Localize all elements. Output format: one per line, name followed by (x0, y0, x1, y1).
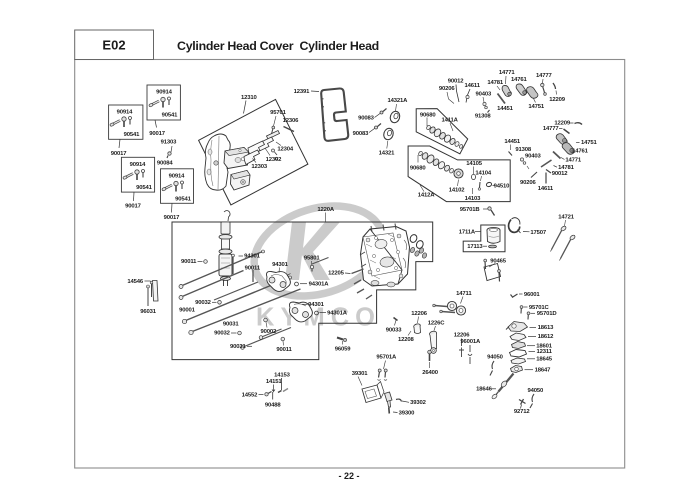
svg-text:14151: 14151 (266, 379, 283, 385)
svg-text:14102: 14102 (449, 187, 466, 193)
svg-text:1226C: 1226C (428, 321, 446, 327)
svg-text:90403: 90403 (475, 91, 492, 97)
svg-text:90541: 90541 (175, 196, 192, 202)
svg-text:12206: 12206 (454, 333, 471, 339)
svg-text:95701C: 95701C (529, 305, 550, 311)
svg-text:92712: 92712 (514, 409, 531, 415)
svg-text:90488: 90488 (265, 403, 282, 409)
svg-text:39302: 39302 (410, 400, 427, 406)
svg-text:14104: 14104 (475, 170, 492, 176)
svg-text:95701D: 95701D (537, 311, 557, 317)
svg-text:14751: 14751 (528, 104, 545, 110)
svg-text:96001: 96001 (524, 292, 541, 298)
svg-text:14761: 14761 (572, 149, 589, 155)
svg-text:1412A: 1412A (418, 193, 436, 199)
svg-text:90541: 90541 (136, 185, 153, 191)
svg-text:14761: 14761 (511, 77, 528, 83)
svg-text:18646: 18646 (476, 387, 493, 393)
svg-text:12209: 12209 (549, 97, 566, 103)
svg-text:90206: 90206 (439, 86, 456, 92)
svg-text:E02: E02 (102, 38, 125, 53)
svg-text:91303: 91303 (161, 140, 178, 146)
svg-text:94301: 94301 (308, 302, 325, 308)
svg-text:90914: 90914 (130, 162, 147, 168)
svg-text:90031: 90031 (230, 344, 247, 350)
svg-text:90012: 90012 (552, 171, 569, 177)
svg-text:90033: 90033 (386, 327, 403, 333)
svg-text:96059: 96059 (335, 347, 352, 353)
svg-text:26400: 26400 (422, 370, 439, 376)
svg-text:90541: 90541 (162, 113, 179, 119)
svg-text:14711: 14711 (456, 291, 472, 297)
svg-text:14771: 14771 (499, 70, 516, 76)
svg-text:94301: 94301 (244, 254, 261, 260)
svg-text:Cylinder Head Cover Cylinder: Cylinder Head Cover Cylinder Head (177, 39, 379, 53)
svg-text:94510: 94510 (494, 183, 511, 189)
svg-text:14781: 14781 (487, 80, 504, 86)
svg-text:12208: 12208 (398, 337, 415, 343)
svg-text:90011: 90011 (181, 259, 197, 265)
svg-text:94050: 94050 (487, 354, 504, 360)
svg-text:96001A: 96001A (460, 339, 481, 345)
svg-text:14451: 14451 (504, 139, 521, 145)
svg-text:12391: 12391 (294, 89, 311, 95)
svg-text:90017: 90017 (164, 215, 181, 221)
svg-text:90083: 90083 (358, 115, 375, 121)
svg-text:12302: 12302 (266, 157, 283, 163)
svg-text:90084: 90084 (157, 160, 174, 166)
svg-text:17113: 17113 (467, 244, 483, 250)
svg-text:1711A: 1711A (459, 229, 476, 235)
svg-text:95701: 95701 (270, 110, 287, 116)
svg-text:90031: 90031 (223, 322, 240, 328)
svg-text:14777: 14777 (543, 126, 560, 132)
svg-text:14721: 14721 (558, 214, 575, 220)
svg-text:90680: 90680 (420, 112, 437, 118)
svg-text:90017: 90017 (149, 131, 166, 137)
svg-text:14105: 14105 (466, 161, 483, 167)
svg-text:- 22 -: - 22 - (338, 471, 359, 481)
svg-text:39301: 39301 (352, 371, 369, 377)
svg-text:12306: 12306 (283, 118, 300, 124)
svg-text:14546: 14546 (127, 279, 144, 285)
svg-text:14451: 14451 (497, 106, 514, 112)
svg-text:12311: 12311 (536, 349, 552, 355)
svg-text:90032: 90032 (214, 331, 231, 337)
svg-text:14611: 14611 (465, 83, 481, 89)
svg-text:90206: 90206 (520, 180, 537, 186)
svg-text:18613: 18613 (538, 325, 555, 331)
svg-text:90083: 90083 (353, 131, 370, 137)
svg-text:1411A: 1411A (441, 118, 458, 124)
svg-text:12310: 12310 (241, 95, 258, 101)
svg-text:94301A: 94301A (309, 281, 330, 287)
svg-text:14751: 14751 (581, 140, 598, 146)
svg-text:91308: 91308 (515, 147, 532, 153)
svg-text:90914: 90914 (156, 90, 173, 96)
svg-text:39300: 39300 (399, 410, 416, 416)
svg-text:94301: 94301 (272, 262, 289, 268)
svg-text:94050: 94050 (527, 388, 544, 394)
svg-text:90011: 90011 (245, 265, 261, 271)
svg-text:17507: 17507 (530, 230, 547, 236)
svg-text:14153: 14153 (274, 373, 291, 379)
svg-text:14321A: 14321A (388, 98, 409, 104)
svg-text:12206: 12206 (411, 311, 428, 317)
svg-text:18647: 18647 (535, 368, 552, 374)
svg-text:1220A: 1220A (317, 207, 335, 213)
svg-text:14777: 14777 (536, 73, 553, 79)
svg-text:95701A: 95701A (376, 355, 397, 361)
svg-text:12304: 12304 (277, 146, 294, 152)
svg-text:14771: 14771 (565, 157, 582, 163)
svg-text:95701B: 95701B (460, 207, 480, 213)
svg-text:95801: 95801 (304, 255, 321, 261)
svg-text:14321: 14321 (379, 151, 396, 157)
svg-text:18612: 18612 (538, 334, 555, 340)
svg-text:91308: 91308 (475, 114, 492, 120)
svg-text:90680: 90680 (410, 165, 427, 171)
svg-text:90465: 90465 (490, 258, 507, 264)
svg-text:90011: 90011 (276, 347, 292, 353)
svg-text:90032: 90032 (195, 300, 212, 306)
svg-text:90914: 90914 (169, 173, 186, 179)
svg-text:90002: 90002 (260, 329, 277, 335)
svg-text:94301A: 94301A (327, 310, 348, 316)
svg-text:14552: 14552 (242, 392, 259, 398)
svg-text:90017: 90017 (111, 151, 128, 157)
svg-text:90017: 90017 (125, 203, 142, 209)
svg-text:90012: 90012 (448, 79, 465, 85)
svg-text:12205: 12205 (328, 271, 345, 277)
svg-text:90541: 90541 (124, 132, 141, 138)
svg-text:96031: 96031 (140, 309, 157, 315)
svg-text:14611: 14611 (538, 186, 554, 192)
svg-text:14103: 14103 (465, 196, 482, 202)
svg-text:90403: 90403 (525, 154, 542, 160)
svg-text:90001: 90001 (179, 308, 196, 314)
svg-text:90914: 90914 (117, 110, 134, 116)
svg-text:18645: 18645 (536, 357, 553, 363)
svg-text:12303: 12303 (251, 164, 268, 170)
